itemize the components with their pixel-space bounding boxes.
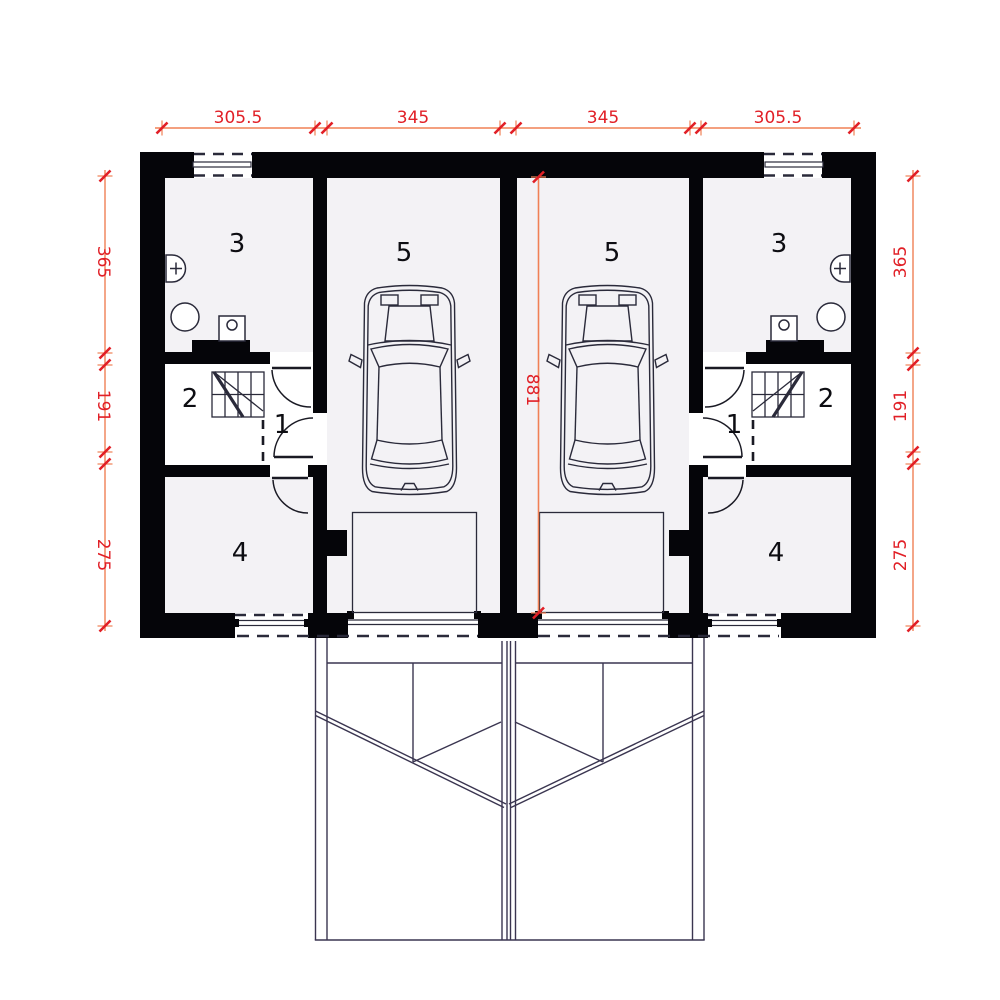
room-label-left-bathroom: 3	[229, 229, 246, 259]
dim-label-top-0: 305.5	[214, 108, 263, 128]
round-fixture-right	[817, 303, 845, 331]
toilet-fixture-right	[771, 316, 797, 341]
room-label-right-stairs: 2	[818, 384, 835, 414]
room-label-left-utility: 4	[232, 538, 249, 568]
dim-label-right-0: 365	[891, 246, 911, 278]
floor-plan-drawing: 3 5 2 1 4 3 5 2 1 4 305.5 345 345 305.5	[0, 0, 1000, 1000]
room-label-left-stairs: 2	[182, 384, 199, 414]
dim-label-right-1: 191	[891, 390, 911, 422]
dim-label-left-1: 191	[93, 390, 113, 422]
staircase-right	[752, 372, 804, 417]
room-label-right-utility: 4	[768, 538, 785, 568]
room-label-right-hall: 1	[726, 410, 743, 440]
sink-icon-left	[166, 255, 186, 282]
dim-label-left-2: 275	[93, 539, 113, 571]
dim-label-top-2: 345	[587, 108, 619, 128]
dimension-top: 305.5 345 345 305.5	[155, 108, 861, 136]
dim-label-top-3: 305.5	[754, 108, 803, 128]
dim-label-left-0: 365	[93, 246, 113, 278]
dimension-left: 365 191 275	[93, 170, 113, 632]
room-label-right-garage: 5	[604, 238, 621, 268]
toilet-fixture-left	[219, 316, 245, 341]
dim-label-top-1: 345	[397, 108, 429, 128]
dim-label-center: 881	[522, 374, 542, 406]
driveway-plan	[315, 638, 705, 940]
room-label-left-garage: 5	[396, 238, 413, 268]
round-fixture-left	[171, 303, 199, 331]
room-label-right-bathroom: 3	[771, 229, 788, 259]
dimension-right: 365 191 275	[891, 170, 921, 632]
sink-icon-right	[831, 255, 851, 282]
room-label-left-hall: 1	[274, 410, 291, 440]
dim-label-right-2: 275	[891, 539, 911, 571]
floor-plan-page: 3 5 2 1 4 3 5 2 1 4 305.5 345 345 305.5	[0, 0, 1000, 1000]
staircase-left	[212, 372, 264, 417]
